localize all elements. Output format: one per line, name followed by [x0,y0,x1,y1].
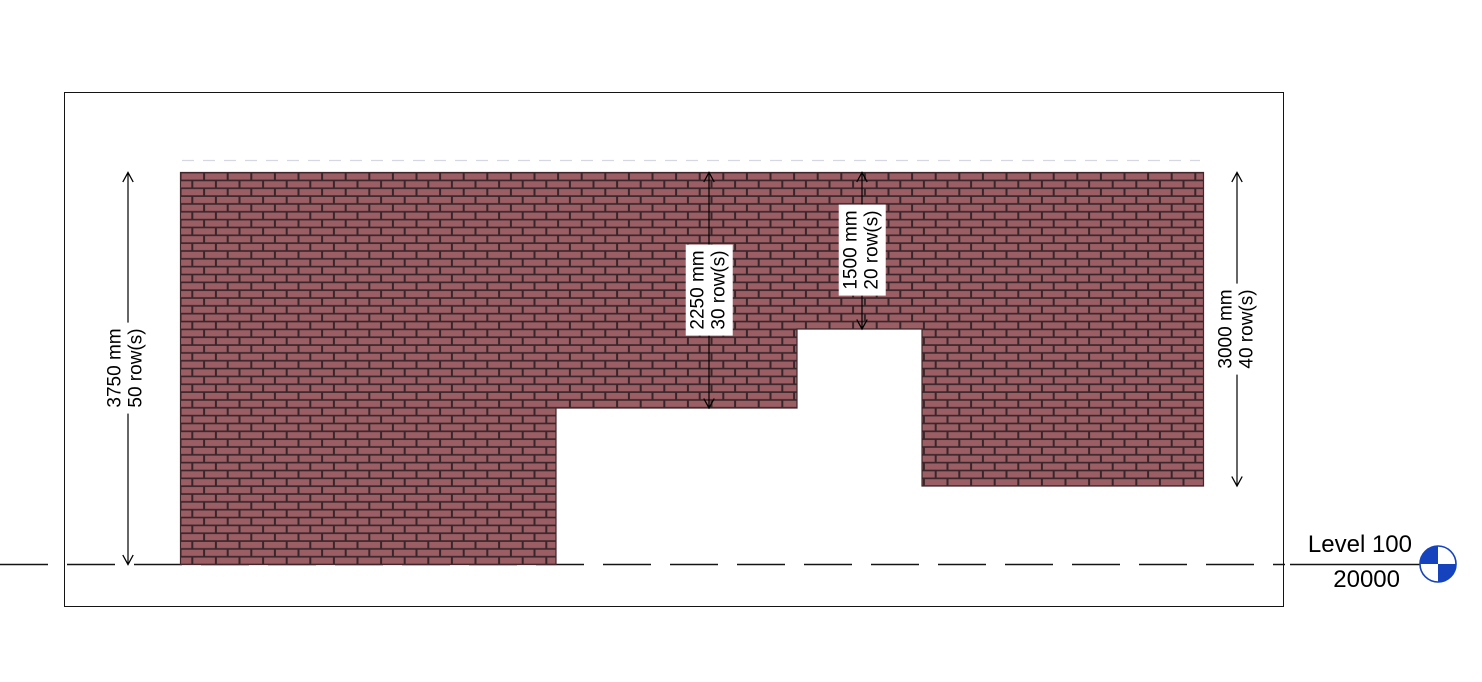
dimension-label-middle-right[interactable]: 1500 mm 20 row(s) [839,204,886,295]
brick-wall[interactable] [181,173,1204,565]
dimension-value: 2250 mm [688,250,709,329]
dimension-rows: 30 row(s) [709,250,730,329]
dimension-value: 3000 mm [1216,289,1237,368]
dimension-label-right[interactable]: 3000 mm 40 row(s) [1214,283,1261,374]
dimension-rows: 20 row(s) [862,210,883,289]
dimension-value: 3750 mm [105,328,126,407]
dimension-rows: 40 row(s) [1237,289,1258,368]
dimension-label-left[interactable]: 3750 mm 50 row(s) [103,322,150,413]
dimension-value: 1500 mm [841,210,862,289]
level-elevation-text[interactable]: 20000 [1276,567,1400,592]
level-name-text[interactable]: Level 100 [1290,532,1412,557]
elevation-view-canvas: 3750 mm 50 row(s) 2250 mm 30 row(s) 1500… [0,0,1482,682]
level-head-marker[interactable] [1420,546,1456,582]
dimension-label-middle-left[interactable]: 2250 mm 30 row(s) [686,244,733,335]
dimension-rows: 50 row(s) [126,328,147,407]
